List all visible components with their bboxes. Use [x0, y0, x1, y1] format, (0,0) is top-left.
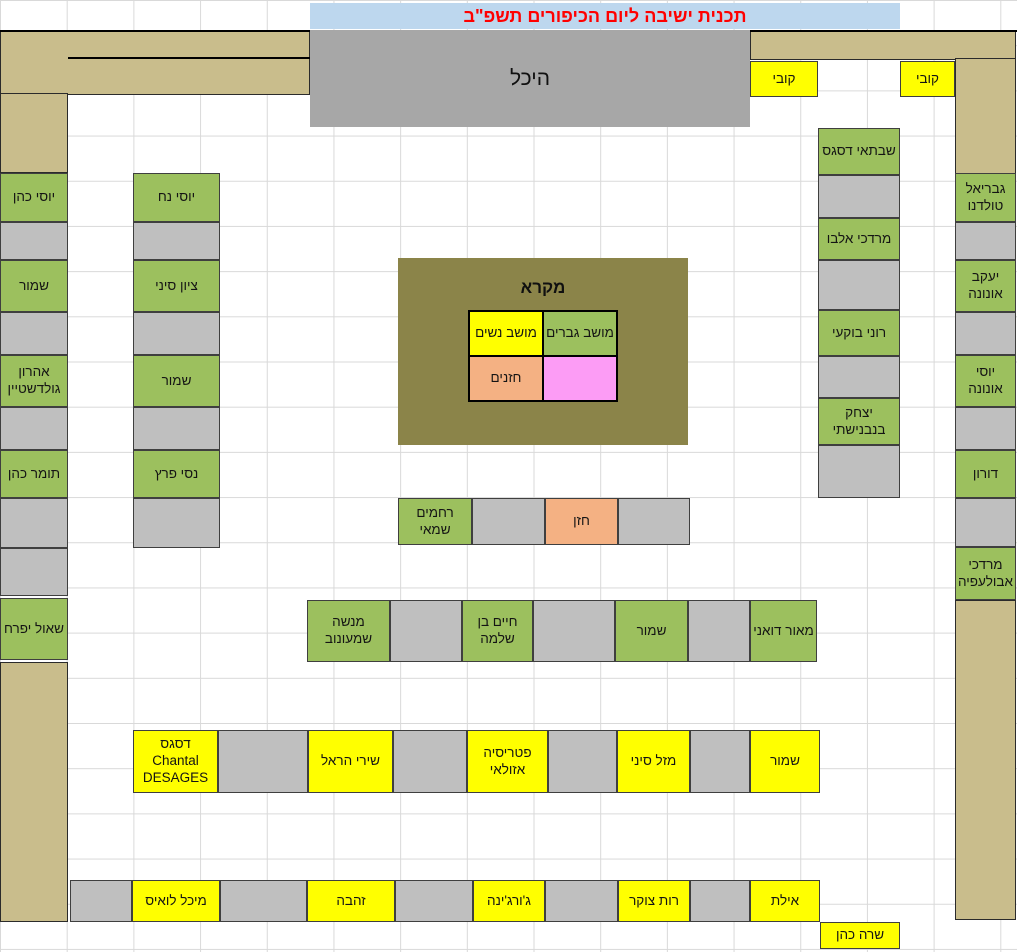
seat-empty[interactable]	[955, 407, 1016, 450]
seat-empty[interactable]	[688, 600, 750, 662]
seat-women[interactable]: קובי	[900, 61, 955, 97]
seat-empty[interactable]	[548, 730, 617, 793]
seat-empty[interactable]	[133, 312, 220, 355]
seat-women[interactable]: מיכל לואיס	[132, 880, 220, 922]
seat-empty[interactable]	[0, 498, 68, 548]
seat-men[interactable]: שאול יפרח	[0, 598, 68, 660]
wall-block	[750, 30, 1016, 60]
seat-men[interactable]: יוסי אונונה	[955, 355, 1016, 407]
seat-women[interactable]: קובי	[750, 61, 818, 97]
seat-men[interactable]: אהרון גולדשטיין	[0, 355, 68, 407]
seat-men[interactable]: דורון	[955, 450, 1016, 498]
seat-men[interactable]: מנשה שמעונוב	[307, 600, 390, 662]
seat-empty[interactable]	[955, 498, 1016, 547]
seat-women[interactable]: שירי הראל	[308, 730, 393, 793]
seat-men[interactable]: רחמים שמאי	[398, 498, 472, 545]
legend-men-swatch: מושב גברים	[543, 311, 617, 356]
legend-title: מקרא	[398, 258, 688, 298]
seat-men[interactable]: יוסי נח	[133, 173, 220, 222]
seat-empty[interactable]	[955, 312, 1016, 355]
seat-empty[interactable]	[818, 356, 900, 398]
seat-empty[interactable]	[133, 407, 220, 450]
page-title: תכנית ישיבה ליום הכיפורים תשפ"ב	[310, 3, 900, 29]
wall-block	[0, 30, 310, 95]
seat-empty[interactable]	[618, 498, 690, 545]
wall-block	[0, 93, 68, 173]
seat-men[interactable]: מרדכי אבולעפיה	[955, 547, 1016, 600]
seat-empty[interactable]	[818, 260, 900, 310]
heichal-area: היכל	[310, 30, 750, 127]
seat-women[interactable]: רות צוקר	[618, 880, 690, 922]
seat-empty[interactable]	[472, 498, 545, 545]
seat-empty[interactable]	[0, 312, 68, 355]
legend-reserved-swatch	[543, 356, 617, 401]
seat-empty[interactable]	[70, 880, 132, 922]
seat-men[interactable]: מרדכי אלבו	[818, 218, 900, 260]
seat-women[interactable]: זהבה	[307, 880, 395, 922]
legend-women-swatch: מושב נשים	[469, 311, 543, 356]
seat-empty[interactable]	[220, 880, 307, 922]
seat-empty[interactable]	[0, 548, 68, 596]
seat-men[interactable]: חיים בן שלמה	[462, 600, 533, 662]
seat-women[interactable]: ג'ורג'ינה	[473, 880, 545, 922]
seat-men[interactable]: שמור	[0, 260, 68, 312]
seat-empty[interactable]	[0, 407, 68, 450]
seat-empty[interactable]	[218, 730, 308, 793]
seat-men[interactable]: שמור	[615, 600, 688, 662]
seat-women[interactable]: אילת	[750, 880, 820, 922]
legend-grid: מושב גברים מושב נשים חזנים	[468, 310, 618, 402]
seat-men[interactable]: שבתאי דסגס	[818, 128, 900, 175]
legend: מקרא מושב גברים מושב נשים חזנים	[398, 258, 688, 445]
seat-men[interactable]: שמור	[133, 355, 220, 407]
legend-cantor-swatch: חזנים	[469, 356, 543, 401]
wall-block	[955, 600, 1016, 920]
wall-block	[955, 58, 1016, 174]
partition-wall-line	[68, 57, 310, 59]
seat-women[interactable]: דסגס Chantal DESAGES	[133, 730, 218, 793]
seat-men[interactable]: יצחק בנבנישתי	[818, 398, 900, 445]
seat-empty[interactable]	[818, 175, 900, 218]
seat-empty[interactable]	[395, 880, 473, 922]
seat-empty[interactable]	[133, 498, 220, 548]
seat-men[interactable]: ציון סיני	[133, 260, 220, 312]
seat-cantor[interactable]: חזן	[545, 498, 618, 545]
seat-empty[interactable]	[133, 222, 220, 260]
seat-empty[interactable]	[0, 222, 68, 260]
seat-empty[interactable]	[818, 445, 900, 498]
seat-empty[interactable]	[545, 880, 618, 922]
seat-empty[interactable]	[690, 730, 750, 793]
seat-men[interactable]: יעקב אונונה	[955, 260, 1016, 312]
wall-block	[0, 662, 68, 922]
seat-men[interactable]: תומר כהן	[0, 450, 68, 498]
seat-empty[interactable]	[955, 222, 1016, 260]
seat-empty[interactable]	[393, 730, 467, 793]
seat-women[interactable]: מזל סיני	[617, 730, 690, 793]
seat-men[interactable]: מאור דואני	[750, 600, 817, 662]
seat-women[interactable]: פטריסיה אזולאי	[467, 730, 548, 793]
seat-women[interactable]: שמור	[750, 730, 820, 793]
seat-men[interactable]: נסי פרץ	[133, 450, 220, 498]
seat-empty[interactable]	[533, 600, 615, 662]
seat-men[interactable]: רוני בוקעי	[818, 310, 900, 356]
seat-empty[interactable]	[690, 880, 750, 922]
seat-women[interactable]: שרה כהן	[820, 922, 900, 949]
seat-men[interactable]: גבריאל טולדנו	[955, 173, 1016, 222]
seat-empty[interactable]	[390, 600, 462, 662]
seating-chart: תכנית ישיבה ליום הכיפורים תשפ"ב היכל מקר…	[0, 0, 1017, 952]
seat-men[interactable]: יוסי כהן	[0, 173, 68, 222]
